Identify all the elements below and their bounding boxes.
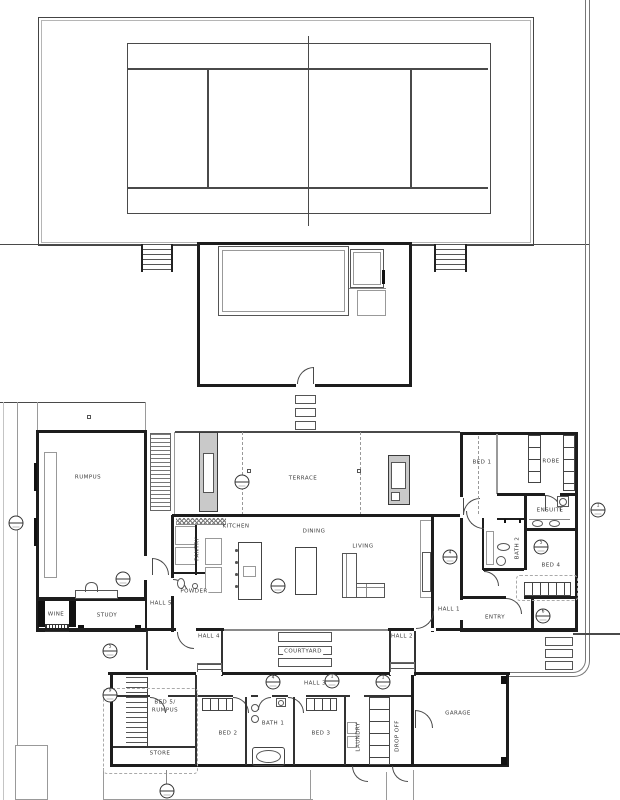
bed1-door-leaf (463, 498, 464, 515)
room-label-dining: DINING (303, 529, 326, 535)
stool-dot (235, 585, 238, 588)
sofa-horizontal (356, 583, 385, 598)
laundry-door-opening (350, 695, 364, 697)
rumpus-window-1 (34, 463, 37, 491)
court-service-line-right (410, 69, 412, 187)
wall-garage-west (411, 675, 414, 767)
room-label-rumpus: RUMPUS (75, 475, 101, 481)
level-marker (235, 475, 250, 490)
pantry-shelf-2 (175, 547, 196, 565)
pool-step-line (349, 288, 386, 289)
room-label-store: STORE (149, 751, 172, 757)
boundary-marker (9, 516, 24, 531)
wall-bed4-north (527, 528, 578, 531)
room-label-study: STUDY (97, 613, 117, 619)
pool-equipment-box (357, 290, 386, 316)
room-label-entry: ENTRY (485, 615, 505, 621)
courtyard-planter-1 (278, 632, 332, 642)
court-net-line (308, 36, 309, 226)
wall-bed3-east (344, 697, 346, 765)
garden-bed (15, 745, 48, 800)
section-marker: 6 (536, 609, 551, 624)
louvre-screen (150, 433, 171, 511)
study-chair (85, 582, 98, 592)
deck-edge-right (145, 402, 146, 431)
terrace-window-left (203, 453, 214, 493)
tag-square-2 (357, 469, 361, 473)
stairs-left (141, 244, 173, 272)
rumpus-window-2 (34, 518, 37, 546)
left-boundary-line (17, 402, 18, 800)
room-label-garage: GARAGE (445, 711, 471, 717)
wall-hall4-west (146, 631, 148, 670)
fireplace-opening (391, 462, 406, 489)
bath1-basin-2 (251, 715, 259, 723)
section-marker (160, 784, 175, 799)
room-label-robe: ROBE (542, 459, 559, 465)
garden-step-2 (295, 408, 316, 417)
entry-step-2 (545, 649, 573, 658)
dropoff-ext-door-arc (392, 766, 408, 782)
floor-plan-drawing: RUMPUS WINE STUDY HALL 5 HALL 4 HALL 3 H… (0, 0, 620, 800)
centerline-dashed-2 (360, 432, 361, 515)
room-label-bed4: BED 4 (542, 563, 561, 569)
garage-door-leaf (415, 710, 416, 728)
section-marker: 4 (443, 550, 458, 565)
path-line-2 (310, 770, 311, 800)
bath1-basin-1 (251, 704, 259, 712)
wing-opening-1 (196, 672, 222, 675)
level-marker (271, 579, 286, 594)
entry-step-1 (545, 637, 573, 646)
section-marker: 4 (266, 675, 281, 690)
stool-dot (235, 573, 238, 576)
centerline-dashed-1 (242, 432, 243, 515)
pantry-shelf-1 (175, 526, 196, 545)
room-label-bath1: BATH 1 (262, 721, 285, 727)
wall-bath1-east (293, 697, 295, 765)
hall4-door-opening (176, 628, 196, 631)
room-label-ensuite: ENSUITE (537, 508, 564, 514)
terrace-west-edge (174, 432, 175, 515)
hall4-label: HALL 4 (198, 634, 220, 640)
island-sink (243, 566, 256, 577)
left-fence-line (0, 402, 146, 403)
wall-bath2-south (483, 568, 524, 571)
room-label-living: LIVING (352, 544, 373, 550)
rumpus-door-leaf (152, 558, 153, 575)
spa-blade-wall (382, 270, 385, 284)
garage-post-2 (501, 757, 507, 765)
hall5-label: HALL 5 (150, 601, 172, 607)
room-label-bath2: BATH 2 (515, 537, 521, 560)
room-label-bed2: BED 2 (219, 731, 238, 737)
sofa-divider (366, 584, 367, 597)
wall-bath2-east (524, 495, 527, 570)
tap-2 (519, 519, 521, 523)
room-label-courtyard: COURTYARD (283, 649, 323, 655)
tap-1 (504, 519, 506, 523)
spa-coping (353, 252, 381, 285)
room-label-bed5-line2: RUMPUS (152, 708, 178, 714)
ensuite-toilet (559, 498, 567, 506)
room-label-bed1: BED 1 (473, 460, 492, 466)
boundary-fence-right (573, 633, 620, 635)
room-label-terrace: TERRACE (289, 476, 317, 482)
bathtub-inner (256, 750, 281, 763)
section-marker: 1 (591, 503, 606, 518)
hall3-label: HALL 3 (303, 681, 327, 687)
wall-garage-east (506, 675, 509, 767)
path-line-4 (413, 770, 414, 800)
wall-bed2-east (245, 697, 247, 765)
sofa-seat-line (357, 587, 384, 588)
section-marker: 1 (376, 675, 391, 690)
section-marker: 5 (534, 540, 549, 555)
entry-door-opening (460, 600, 463, 620)
garage-door-arc (415, 710, 433, 728)
court-service-line-left (207, 69, 209, 187)
mudroom-cabinets (369, 697, 390, 765)
bath1-door-arc (258, 697, 271, 710)
wall-powder-north (172, 572, 205, 574)
section-marker: 9 (103, 688, 118, 703)
wall-entry-east (531, 598, 534, 632)
living-joinery-inner (422, 552, 431, 592)
ensuite-basin-2 (549, 520, 560, 527)
garden-step-3 (295, 421, 316, 430)
rumpus-door-arc (152, 558, 169, 575)
room-label-dropoff: DROP OFF (395, 720, 401, 752)
sofa-vertical (342, 553, 357, 598)
path-line-3 (386, 772, 387, 800)
bed3-door-arc (288, 697, 304, 713)
robe-wardrobe-left (528, 435, 541, 483)
room-label-kitchen: KITCHEN (223, 524, 250, 530)
pool-gate-leaf (313, 367, 314, 384)
bed3-wardrobe (306, 698, 337, 711)
pool-coping (222, 250, 345, 312)
bath2-toilet (496, 556, 506, 566)
courtyard-planter-3 (278, 658, 332, 667)
garage-post-1 (501, 676, 507, 684)
wall-wing-north (108, 672, 510, 675)
left-boundary-line2 (3, 402, 4, 800)
wine-post-right (69, 601, 76, 627)
garden-step-1 (295, 395, 316, 404)
room-label-bed5-line1: BED 5/ (154, 700, 175, 706)
stool-dot (235, 561, 238, 564)
stool-dot (235, 549, 238, 552)
kitchen-bench-hatch (176, 518, 226, 525)
hall4-door-arc (177, 632, 194, 649)
bed2-wardrobe (202, 698, 233, 711)
level-marker (116, 572, 131, 587)
ensuite-basin-1 (532, 520, 543, 527)
courtyard-glass-wall (224, 629, 388, 631)
bed4-eave-dashed (516, 575, 578, 601)
room-label-pantry: PANTRY (195, 537, 201, 561)
deck-edge-left (37, 402, 38, 431)
stairs-right (434, 244, 467, 272)
bath2-bath (497, 543, 510, 551)
room-label-powder: POWDER (179, 589, 208, 595)
wine-post-left (38, 601, 45, 627)
tag-square-1 (247, 469, 251, 473)
section-marker: 1 (325, 674, 340, 689)
dining-table (295, 547, 317, 595)
sofa-seat-line (346, 554, 347, 597)
bath1-toilet (278, 700, 284, 706)
kitchen-cabinet-1 (205, 538, 222, 565)
fireplace-wood-box (391, 492, 400, 501)
wall (145, 598, 148, 632)
bed5-eave-dashed (103, 688, 198, 774)
entry-step-3 (545, 661, 573, 670)
bed1-dashed-line (478, 436, 479, 514)
section-marker: 5 (103, 644, 118, 659)
hall1-label: HALL 1 (438, 607, 460, 613)
wall-ensuite-north (497, 493, 545, 496)
hall2-label: HALL 2 (391, 634, 413, 640)
robe-wardrobe-right (563, 435, 575, 491)
room-label-wine: WINE (48, 612, 64, 618)
bath2-shelf (486, 531, 494, 565)
wall-main-north (172, 514, 460, 517)
laundry-ext-door-arc (352, 766, 368, 782)
rumpus-cabinet (44, 452, 57, 578)
room-label-bed3: BED 3 (312, 731, 331, 737)
tag-square-3 (87, 415, 91, 419)
bed1-robe-divider (496, 434, 498, 494)
room-label-laundry: LAUNDRY (356, 722, 362, 751)
rumpus-door-opening (144, 556, 147, 580)
